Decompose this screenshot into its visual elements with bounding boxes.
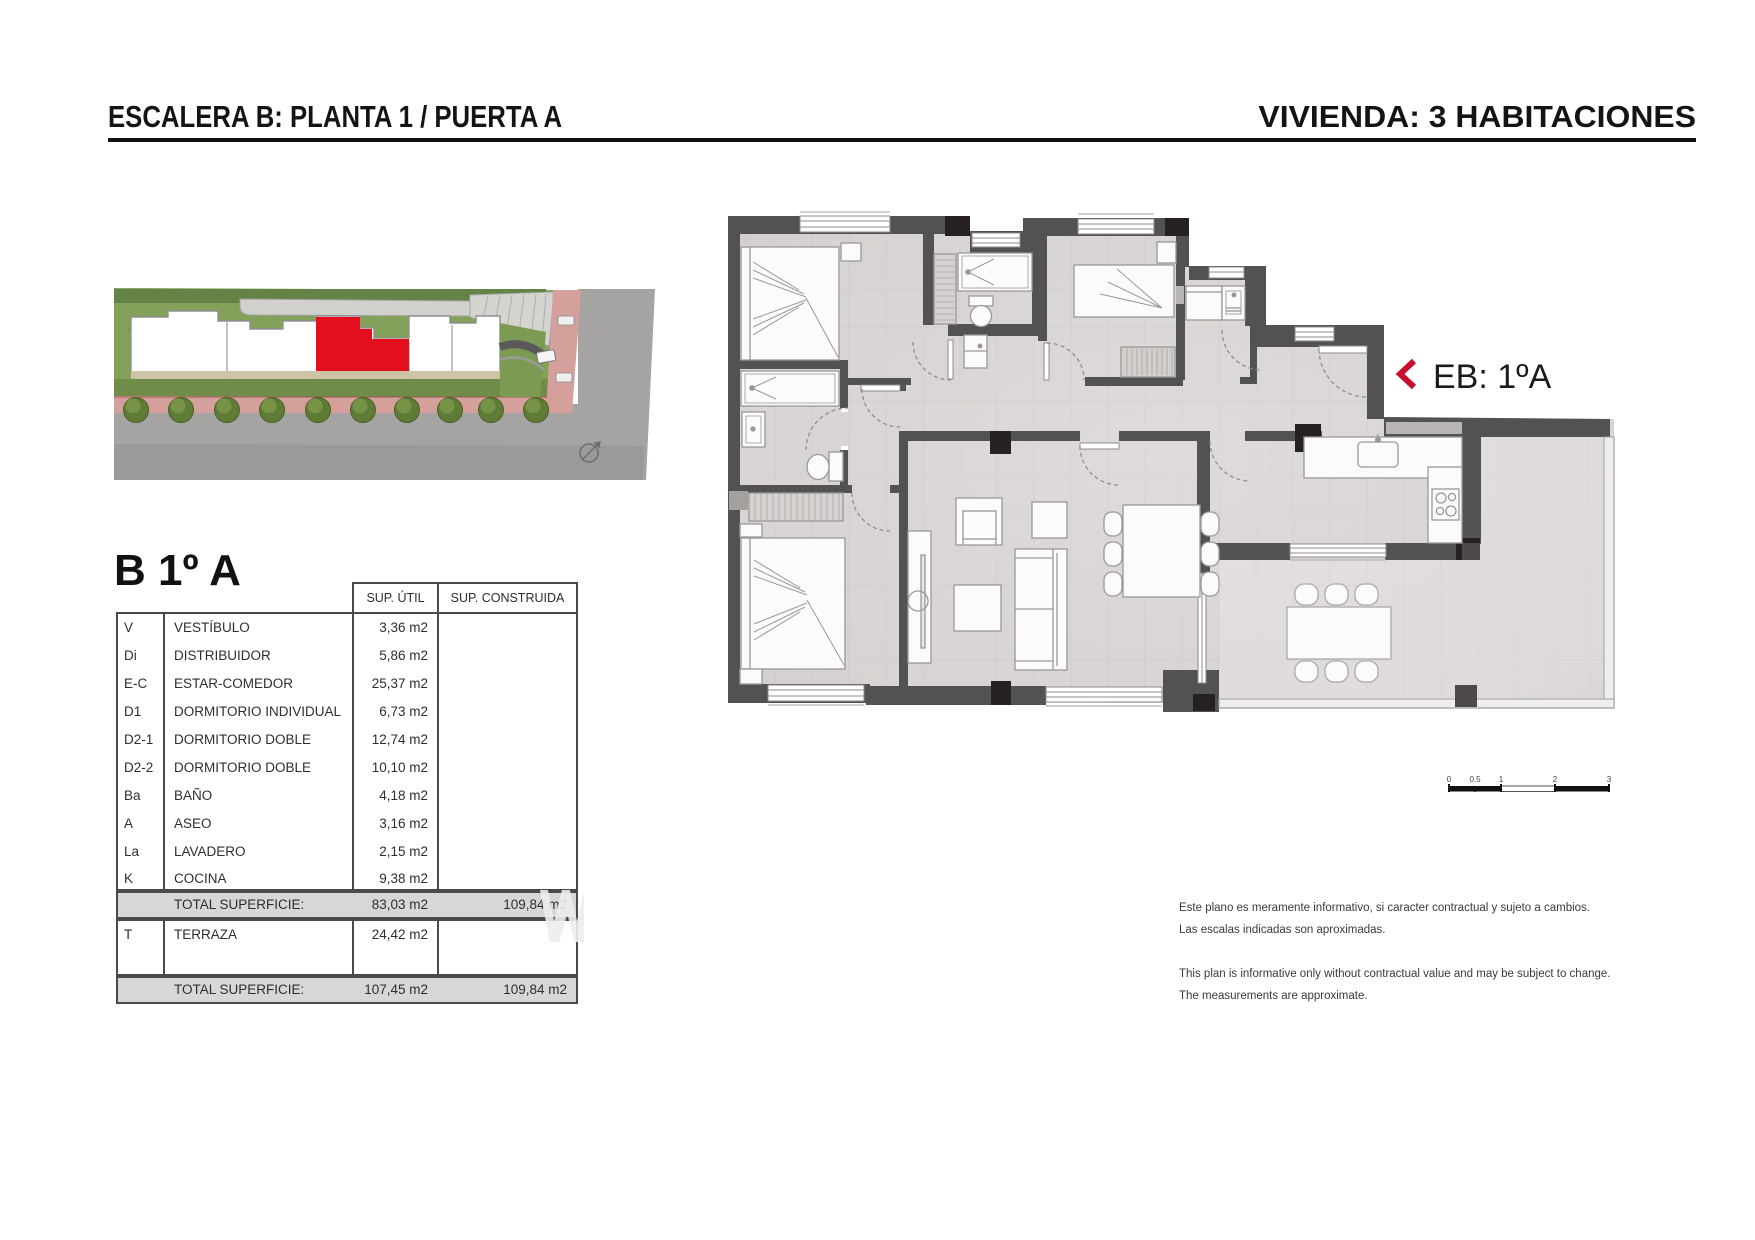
svg-text:EB: 1ºA: EB: 1ºA (1433, 358, 1552, 396)
svg-text:0.5: 0.5 (1469, 775, 1481, 784)
svg-text:1: 1 (1499, 775, 1504, 784)
svg-text:0: 0 (1447, 775, 1452, 784)
svg-text:2: 2 (1553, 775, 1558, 784)
svg-text:3: 3 (1607, 775, 1612, 784)
